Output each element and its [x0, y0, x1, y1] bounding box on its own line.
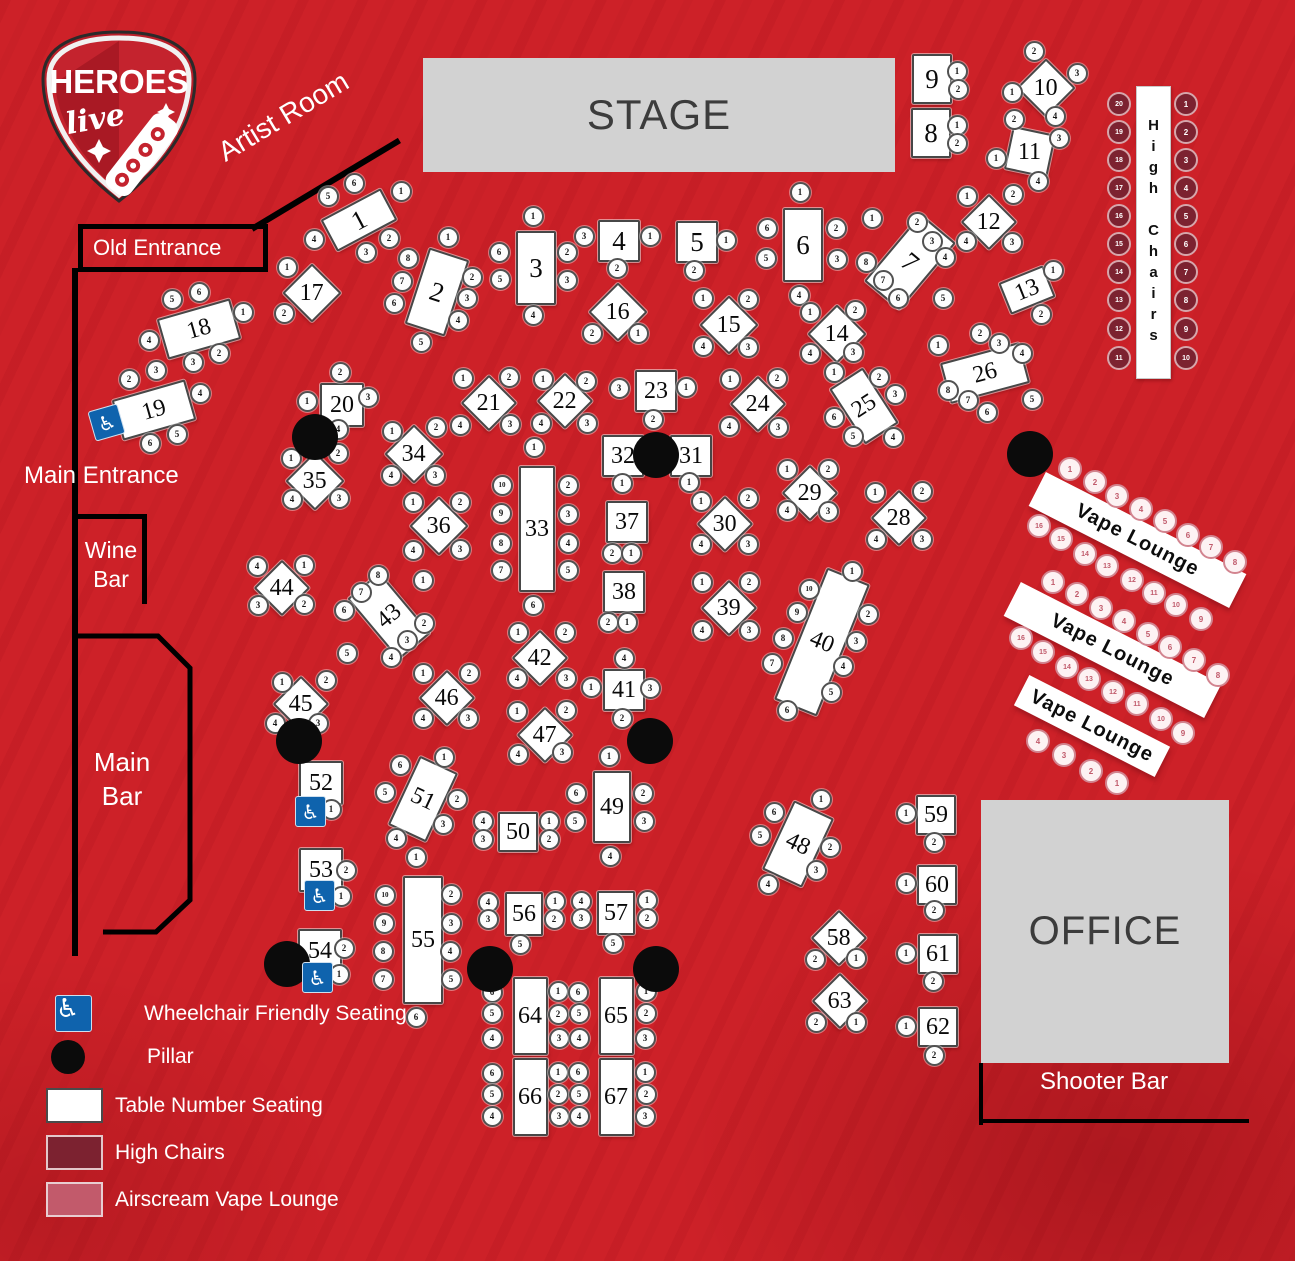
- seat-65-3[interactable]: 3: [635, 1028, 656, 1049]
- vape-seat-13[interactable]: 13: [1095, 554, 1119, 578]
- seat-60-2[interactable]: 2: [924, 900, 945, 921]
- seat-33-8[interactable]: 8: [491, 533, 512, 554]
- seat-51-2[interactable]: 2: [447, 789, 468, 810]
- seat-29-3[interactable]: 3: [818, 501, 839, 522]
- seat-22-2[interactable]: 2: [576, 371, 597, 392]
- vape-seat-13[interactable]: 13: [1077, 667, 1101, 691]
- seat-47-4[interactable]: 4: [508, 744, 529, 765]
- high-chair-seat-20[interactable]: 20: [1107, 92, 1131, 116]
- seat-33-5[interactable]: 5: [558, 560, 579, 581]
- seat-40-8[interactable]: 8: [773, 628, 794, 649]
- table-59[interactable]: 59: [916, 795, 956, 835]
- seat-2-4[interactable]: 4: [448, 310, 469, 331]
- seat-25-2[interactable]: 2: [869, 367, 890, 388]
- seat-42-4[interactable]: 4: [507, 668, 528, 689]
- seat-41-1[interactable]: 1: [581, 677, 602, 698]
- seat-6-5[interactable]: 5: [756, 248, 777, 269]
- seat-43-4[interactable]: 4: [381, 647, 402, 668]
- seat-40-7[interactable]: 7: [762, 653, 783, 674]
- seat-38-2[interactable]: 2: [598, 612, 619, 633]
- seat-66-2[interactable]: 2: [548, 1084, 569, 1105]
- seat-51-5[interactable]: 5: [375, 782, 396, 803]
- seat-46-3[interactable]: 3: [458, 708, 479, 729]
- seat-29-1[interactable]: 1: [777, 459, 798, 480]
- seat-22-4[interactable]: 4: [531, 413, 552, 434]
- seat-5-1[interactable]: 1: [716, 230, 737, 251]
- seat-64-3[interactable]: 3: [549, 1028, 570, 1049]
- table-65[interactable]: 65: [599, 977, 634, 1055]
- seat-36-3[interactable]: 3: [450, 539, 471, 560]
- seat-13-1[interactable]: 1: [1043, 260, 1064, 281]
- table-6[interactable]: 6: [783, 208, 823, 282]
- seat-19-2[interactable]: 2: [119, 369, 140, 390]
- vape-seat-2[interactable]: 2: [1065, 582, 1089, 606]
- high-chair-seat-14[interactable]: 14: [1107, 260, 1131, 284]
- seat-7-4[interactable]: 4: [935, 247, 956, 268]
- seat-5-2[interactable]: 2: [684, 260, 705, 281]
- high-chair-seat-13[interactable]: 13: [1107, 288, 1131, 312]
- table-57[interactable]: 57: [597, 891, 635, 935]
- seat-48-1[interactable]: 1: [811, 789, 832, 810]
- vape-seat-1[interactable]: 1: [1105, 771, 1129, 795]
- vape-seat-12[interactable]: 12: [1101, 680, 1125, 704]
- high-chair-seat-6[interactable]: 6: [1174, 232, 1198, 256]
- vape-seat-3[interactable]: 3: [1105, 484, 1129, 508]
- seat-55-7[interactable]: 7: [373, 969, 394, 990]
- high-chair-seat-11[interactable]: 11: [1107, 346, 1131, 370]
- seat-47-1[interactable]: 1: [507, 701, 528, 722]
- seat-38-1[interactable]: 1: [617, 612, 638, 633]
- seat-7-7[interactable]: 7: [873, 270, 894, 291]
- seat-33-2[interactable]: 2: [558, 475, 579, 496]
- vape-seat-7[interactable]: 7: [1182, 648, 1206, 672]
- seat-39-2[interactable]: 2: [739, 572, 760, 593]
- seat-61-2[interactable]: 2: [923, 971, 944, 992]
- high-chair-seat-1[interactable]: 1: [1174, 92, 1198, 116]
- seat-28-3[interactable]: 3: [912, 529, 933, 550]
- seat-20-2[interactable]: 2: [330, 362, 351, 383]
- seat-34-3[interactable]: 3: [425, 465, 446, 486]
- vape-seat-4[interactable]: 4: [1112, 609, 1136, 633]
- seat-49-5[interactable]: 5: [565, 811, 586, 832]
- seat-59-2[interactable]: 2: [924, 832, 945, 853]
- seat-57-5[interactable]: 5: [603, 933, 624, 954]
- seat-18-4[interactable]: 4: [139, 330, 160, 351]
- seat-53-2[interactable]: 2: [336, 860, 357, 881]
- table-9[interactable]: 9: [912, 54, 952, 104]
- seat-28-4[interactable]: 4: [866, 529, 887, 550]
- seat-40-9[interactable]: 9: [787, 602, 808, 623]
- high-chair-seat-9[interactable]: 9: [1174, 317, 1198, 341]
- seat-61-1[interactable]: 1: [896, 943, 917, 964]
- seat-19-6[interactable]: 6: [140, 433, 161, 454]
- seat-14-3[interactable]: 3: [843, 342, 864, 363]
- seat-60-1[interactable]: 1: [896, 873, 917, 894]
- seat-24-1[interactable]: 1: [720, 369, 741, 390]
- seat-7-8[interactable]: 8: [856, 252, 877, 273]
- seat-9-2[interactable]: 2: [948, 79, 969, 100]
- seat-48-2[interactable]: 2: [820, 837, 841, 858]
- seat-25-6[interactable]: 6: [824, 407, 845, 428]
- vape-seat-16[interactable]: 16: [1009, 626, 1033, 650]
- seat-67-5[interactable]: 5: [569, 1084, 590, 1105]
- high-chair-seat-19[interactable]: 19: [1107, 120, 1131, 144]
- seat-3-5[interactable]: 5: [490, 269, 511, 290]
- seat-65-6[interactable]: 6: [568, 982, 589, 1003]
- seat-64-4[interactable]: 4: [482, 1028, 503, 1049]
- seat-42-3[interactable]: 3: [556, 668, 577, 689]
- seat-23-1[interactable]: 1: [676, 377, 697, 398]
- seat-7-6[interactable]: 6: [888, 288, 909, 309]
- seat-51-6[interactable]: 6: [390, 755, 411, 776]
- high-chair-seat-5[interactable]: 5: [1174, 204, 1198, 228]
- seat-65-4[interactable]: 4: [569, 1028, 590, 1049]
- seat-6-6[interactable]: 6: [757, 218, 778, 239]
- seat-57-2[interactable]: 2: [637, 908, 658, 929]
- seat-18-1[interactable]: 1: [233, 302, 254, 323]
- vape-seat-11[interactable]: 11: [1142, 581, 1166, 605]
- seat-66-4[interactable]: 4: [482, 1106, 503, 1127]
- seat-10-4[interactable]: 4: [1045, 106, 1066, 127]
- seat-51-3[interactable]: 3: [433, 814, 454, 835]
- vape-seat-1[interactable]: 1: [1041, 570, 1065, 594]
- seat-14-1[interactable]: 1: [800, 302, 821, 323]
- table-49[interactable]: 49: [593, 771, 631, 843]
- seat-40-2[interactable]: 2: [858, 604, 879, 625]
- seat-25-4[interactable]: 4: [883, 427, 904, 448]
- seat-65-2[interactable]: 2: [636, 1003, 657, 1024]
- seat-67-3[interactable]: 3: [635, 1106, 656, 1127]
- vape-seat-3[interactable]: 3: [1089, 596, 1113, 620]
- seat-49-4[interactable]: 4: [600, 846, 621, 867]
- seat-16-2[interactable]: 2: [582, 323, 603, 344]
- seat-19-4[interactable]: 4: [190, 383, 211, 404]
- seat-15-1[interactable]: 1: [693, 288, 714, 309]
- seat-14-4[interactable]: 4: [800, 343, 821, 364]
- seat-37-1[interactable]: 1: [621, 543, 642, 564]
- seat-34-2[interactable]: 2: [426, 417, 447, 438]
- seat-55-5[interactable]: 5: [441, 969, 462, 990]
- seat-2-1[interactable]: 1: [438, 227, 459, 248]
- seat-40-4[interactable]: 4: [833, 656, 854, 677]
- seat-48-6[interactable]: 6: [764, 802, 785, 823]
- high-chair-seat-10[interactable]: 10: [1174, 346, 1198, 370]
- table-41[interactable]: 41: [603, 669, 645, 711]
- vape-seat-10[interactable]: 10: [1149, 707, 1173, 731]
- seat-43-1[interactable]: 1: [413, 570, 434, 591]
- seat-33-7[interactable]: 7: [491, 560, 512, 581]
- seat-2-3[interactable]: 3: [457, 288, 478, 309]
- seat-56-2[interactable]: 2: [544, 909, 565, 930]
- high-chair-seat-2[interactable]: 2: [1174, 120, 1198, 144]
- seat-4-3[interactable]: 3: [574, 226, 595, 247]
- seat-41-3[interactable]: 3: [640, 678, 661, 699]
- seat-21-4[interactable]: 4: [450, 415, 471, 436]
- seat-31-1[interactable]: 1: [679, 472, 700, 493]
- seat-2-2[interactable]: 2: [462, 267, 483, 288]
- seat-55-9[interactable]: 9: [374, 913, 395, 934]
- high-chair-seat-12[interactable]: 12: [1107, 317, 1131, 341]
- table-23[interactable]: 23: [635, 370, 677, 412]
- table-5[interactable]: 5: [676, 221, 718, 263]
- seat-43-7[interactable]: 7: [351, 582, 372, 603]
- seat-12-1[interactable]: 1: [957, 186, 978, 207]
- seat-40-1[interactable]: 1: [842, 561, 863, 582]
- table-62[interactable]: 62: [918, 1007, 958, 1047]
- vape-seat-3[interactable]: 3: [1052, 743, 1076, 767]
- seat-12-4[interactable]: 4: [956, 231, 977, 252]
- seat-25-5[interactable]: 5: [843, 426, 864, 447]
- seat-55-1[interactable]: 1: [406, 847, 427, 868]
- seat-6-3[interactable]: 3: [827, 249, 848, 270]
- seat-33-9[interactable]: 9: [491, 503, 512, 524]
- seat-64-1[interactable]: 1: [548, 981, 569, 1002]
- seat-43-8[interactable]: 8: [368, 565, 389, 586]
- seat-45-1[interactable]: 1: [272, 672, 293, 693]
- seat-18-5[interactable]: 5: [162, 289, 183, 310]
- seat-7-1[interactable]: 1: [862, 208, 883, 229]
- vape-seat-11[interactable]: 11: [1125, 692, 1149, 716]
- seat-21-2[interactable]: 2: [499, 367, 520, 388]
- seat-46-4[interactable]: 4: [413, 708, 434, 729]
- seat-66-6[interactable]: 6: [482, 1063, 503, 1084]
- seat-50-3[interactable]: 3: [473, 829, 494, 850]
- seat-44-2[interactable]: 2: [294, 594, 315, 615]
- seat-67-1[interactable]: 1: [635, 1062, 656, 1083]
- seat-49-1[interactable]: 1: [599, 746, 620, 767]
- seat-39-1[interactable]: 1: [692, 572, 713, 593]
- seat-6-1[interactable]: 1: [790, 182, 811, 203]
- seat-46-2[interactable]: 2: [459, 663, 480, 684]
- vape-seat-8[interactable]: 8: [1223, 550, 1247, 574]
- vape-seat-5[interactable]: 5: [1153, 509, 1177, 533]
- seat-51-1[interactable]: 1: [434, 747, 455, 768]
- seat-40-5[interactable]: 5: [821, 682, 842, 703]
- seat-43-6[interactable]: 6: [334, 600, 355, 621]
- high-chair-seat-16[interactable]: 16: [1107, 204, 1131, 228]
- high-chair-seat-8[interactable]: 8: [1174, 288, 1198, 312]
- vape-seat-2[interactable]: 2: [1083, 470, 1107, 494]
- seat-24-2[interactable]: 2: [767, 368, 788, 389]
- seat-42-2[interactable]: 2: [555, 622, 576, 643]
- seat-51-4[interactable]: 4: [386, 828, 407, 849]
- seat-24-3[interactable]: 3: [768, 417, 789, 438]
- seat-49-6[interactable]: 6: [566, 783, 587, 804]
- vape-seat-5[interactable]: 5: [1136, 622, 1160, 646]
- seat-3-3[interactable]: 3: [557, 270, 578, 291]
- seat-56-5[interactable]: 5: [510, 934, 531, 955]
- vape-seat-6[interactable]: 6: [1176, 523, 1200, 547]
- seat-36-1[interactable]: 1: [403, 492, 424, 513]
- seat-41-2[interactable]: 2: [612, 708, 633, 729]
- seat-15-2[interactable]: 2: [738, 289, 759, 310]
- seat-47-2[interactable]: 2: [556, 700, 577, 721]
- table-38[interactable]: 38: [603, 571, 645, 613]
- vape-seat-14[interactable]: 14: [1055, 655, 1079, 679]
- table-55[interactable]: 55: [403, 876, 443, 1004]
- table-8[interactable]: 8: [911, 108, 951, 158]
- seat-26-5[interactable]: 5: [1022, 389, 1043, 410]
- seat-4-1[interactable]: 1: [640, 226, 661, 247]
- table-67[interactable]: 67: [599, 1058, 634, 1136]
- seat-54-2[interactable]: 2: [334, 938, 355, 959]
- seat-36-4[interactable]: 4: [403, 540, 424, 561]
- seat-26-1[interactable]: 1: [928, 335, 949, 356]
- vape-seat-1[interactable]: 1: [1058, 457, 1082, 481]
- vape-seat-8[interactable]: 8: [1206, 663, 1230, 687]
- seat-4-2[interactable]: 2: [607, 258, 628, 279]
- seat-33-4[interactable]: 4: [558, 533, 579, 554]
- seat-63-2[interactable]: 2: [806, 1012, 827, 1033]
- seat-18-6[interactable]: 6: [189, 282, 210, 303]
- vape-seat-9[interactable]: 9: [1171, 721, 1195, 745]
- seat-35-4[interactable]: 4: [282, 489, 303, 510]
- table-64[interactable]: 64: [513, 977, 548, 1055]
- seat-40-10[interactable]: 10: [799, 579, 820, 600]
- seat-49-3[interactable]: 3: [634, 811, 655, 832]
- seat-64-5[interactable]: 5: [482, 1003, 503, 1024]
- seat-25-1[interactable]: 1: [824, 362, 845, 383]
- seat-35-3[interactable]: 3: [329, 488, 350, 509]
- table-60[interactable]: 60: [917, 865, 957, 905]
- table-56[interactable]: 56: [505, 892, 543, 936]
- seat-20-3[interactable]: 3: [358, 387, 379, 408]
- seat-33-3[interactable]: 3: [558, 504, 579, 525]
- vape-seat-12[interactable]: 12: [1120, 568, 1144, 592]
- seat-34-4[interactable]: 4: [381, 465, 402, 486]
- seat-58-2[interactable]: 2: [805, 949, 826, 970]
- seat-30-2[interactable]: 2: [738, 488, 759, 509]
- seat-19-3[interactable]: 3: [146, 360, 167, 381]
- seat-17-2[interactable]: 2: [274, 303, 295, 324]
- seat-30-3[interactable]: 3: [738, 534, 759, 555]
- seat-3-4[interactable]: 4: [523, 305, 544, 326]
- seat-44-3[interactable]: 3: [248, 595, 269, 616]
- high-chair-seat-15[interactable]: 15: [1107, 232, 1131, 256]
- seat-64-2[interactable]: 2: [548, 1004, 569, 1025]
- seat-56-3[interactable]: 3: [478, 909, 499, 930]
- seat-26-6[interactable]: 6: [977, 402, 998, 423]
- seat-34-1[interactable]: 1: [382, 421, 403, 442]
- seat-23-3[interactable]: 3: [609, 378, 630, 399]
- vape-seat-15[interactable]: 15: [1049, 527, 1073, 551]
- seat-62-1[interactable]: 1: [896, 1016, 917, 1037]
- seat-33-1[interactable]: 1: [524, 437, 545, 458]
- seat-11-2[interactable]: 2: [1004, 109, 1025, 130]
- seat-49-2[interactable]: 2: [633, 783, 654, 804]
- seat-47-3[interactable]: 3: [552, 742, 573, 763]
- seat-41-4[interactable]: 4: [614, 648, 635, 669]
- seat-1-6[interactable]: 6: [344, 173, 365, 194]
- seat-21-3[interactable]: 3: [500, 414, 521, 435]
- seat-39-4[interactable]: 4: [692, 620, 713, 641]
- high-chair-seat-3[interactable]: 3: [1174, 148, 1198, 172]
- table-11[interactable]: 11: [1004, 126, 1056, 178]
- table-37[interactable]: 37: [606, 501, 648, 543]
- seat-44-4[interactable]: 4: [247, 556, 268, 577]
- vape-seat-15[interactable]: 15: [1031, 640, 1055, 664]
- vape-seat-10[interactable]: 10: [1164, 593, 1188, 617]
- seat-36-2[interactable]: 2: [450, 492, 471, 513]
- high-chair-seat-4[interactable]: 4: [1174, 176, 1198, 200]
- seat-3-6[interactable]: 6: [489, 242, 510, 263]
- seat-67-6[interactable]: 6: [568, 1062, 589, 1083]
- seat-67-2[interactable]: 2: [636, 1084, 657, 1105]
- seat-48-4[interactable]: 4: [758, 874, 779, 895]
- seat-26-4[interactable]: 4: [1012, 343, 1033, 364]
- seat-16-1[interactable]: 1: [628, 323, 649, 344]
- seat-10-1[interactable]: 1: [1002, 82, 1023, 103]
- vape-seat-4[interactable]: 4: [1129, 497, 1153, 521]
- seat-23-2[interactable]: 2: [643, 409, 664, 430]
- seat-1-2[interactable]: 2: [379, 228, 400, 249]
- seat-2-8[interactable]: 8: [398, 248, 419, 269]
- seat-33-6[interactable]: 6: [523, 595, 544, 616]
- seat-66-5[interactable]: 5: [482, 1084, 503, 1105]
- seat-7-2[interactable]: 2: [907, 212, 928, 233]
- seat-7-5[interactable]: 5: [933, 288, 954, 309]
- high-chair-seat-7[interactable]: 7: [1174, 260, 1198, 284]
- seat-25-3[interactable]: 3: [885, 384, 906, 405]
- seat-26-8[interactable]: 8: [938, 380, 959, 401]
- seat-10-2[interactable]: 2: [1024, 41, 1045, 62]
- seat-30-1[interactable]: 1: [691, 491, 712, 512]
- seat-20-1[interactable]: 1: [297, 391, 318, 412]
- seat-1-5[interactable]: 5: [318, 186, 339, 207]
- seat-62-2[interactable]: 2: [924, 1045, 945, 1066]
- seat-66-1[interactable]: 1: [548, 1062, 569, 1083]
- seat-26-3[interactable]: 3: [989, 333, 1010, 354]
- seat-30-4[interactable]: 4: [691, 534, 712, 555]
- seat-66-3[interactable]: 3: [549, 1106, 570, 1127]
- seat-57-3[interactable]: 3: [571, 908, 592, 929]
- seat-58-1[interactable]: 1: [846, 948, 867, 969]
- seat-28-1[interactable]: 1: [865, 482, 886, 503]
- vape-seat-4[interactable]: 4: [1026, 729, 1050, 753]
- seat-3-1[interactable]: 1: [523, 206, 544, 227]
- seat-6-2[interactable]: 2: [826, 218, 847, 239]
- seat-19-5[interactable]: 5: [167, 424, 188, 445]
- seat-12-3[interactable]: 3: [1002, 232, 1023, 253]
- seat-26-7[interactable]: 7: [958, 390, 979, 411]
- seat-50-2[interactable]: 2: [539, 829, 560, 850]
- vape-seat-14[interactable]: 14: [1073, 542, 1097, 566]
- seat-55-3[interactable]: 3: [441, 913, 462, 934]
- table-4[interactable]: 4: [598, 220, 640, 262]
- seat-11-3[interactable]: 3: [1049, 128, 1070, 149]
- seat-13-2[interactable]: 2: [1031, 304, 1052, 325]
- seat-55-4[interactable]: 4: [440, 941, 461, 962]
- seat-2-6[interactable]: 6: [384, 293, 405, 314]
- seat-40-6[interactable]: 6: [777, 700, 798, 721]
- vape-seat-2[interactable]: 2: [1079, 759, 1103, 783]
- seat-22-3[interactable]: 3: [577, 413, 598, 434]
- seat-10-3[interactable]: 3: [1067, 63, 1088, 84]
- seat-24-4[interactable]: 4: [719, 416, 740, 437]
- seat-1-3[interactable]: 3: [356, 242, 377, 263]
- seat-63-1[interactable]: 1: [846, 1012, 867, 1033]
- seat-42-1[interactable]: 1: [508, 622, 529, 643]
- table-3[interactable]: 3: [516, 231, 556, 305]
- seat-22-1[interactable]: 1: [533, 369, 554, 390]
- seat-55-6[interactable]: 6: [406, 1007, 427, 1028]
- seat-8-2[interactable]: 2: [947, 133, 968, 154]
- high-chair-seat-18[interactable]: 18: [1107, 148, 1131, 172]
- seat-18-2[interactable]: 2: [209, 343, 230, 364]
- seat-15-4[interactable]: 4: [693, 336, 714, 357]
- seat-11-4[interactable]: 4: [1028, 171, 1049, 192]
- seat-12-2[interactable]: 2: [1003, 184, 1024, 205]
